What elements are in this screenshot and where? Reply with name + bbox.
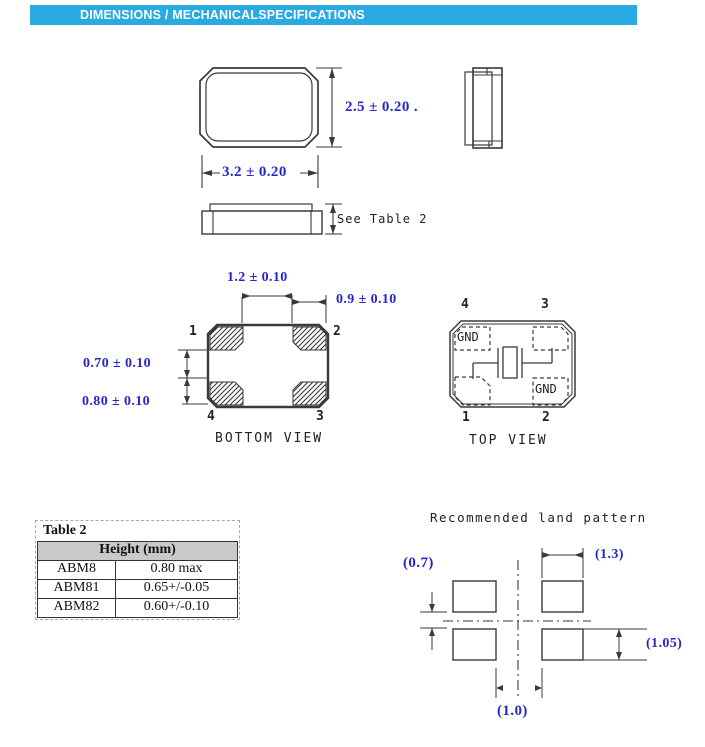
land-pad-h-dim: (1.05) (646, 636, 682, 652)
bottom-pad-height-dim: 0.80 ± 0.10 (82, 394, 150, 410)
table2-header-row: Height (mm) (38, 542, 238, 561)
land-pattern-title: Recommended land pattern (430, 510, 647, 525)
bottom-pad-width-dim: 0.9 ± 0.10 (336, 292, 397, 308)
table-row: ABM81 0.65+/-0.05 (38, 580, 238, 599)
land-pad-w-dim: (1.3) (595, 547, 624, 563)
model-cell: ABM81 (38, 580, 116, 599)
height-cell: 0.60+/-0.10 (116, 599, 238, 618)
height-cell: 0.65+/-0.05 (116, 580, 238, 599)
section-title: DIMENSIONS / MECHANICALSPECIFICATIONS (80, 8, 365, 22)
bottom-view-caption: BOTTOM VIEW (215, 431, 323, 446)
gnd-label-top-left: GND (457, 330, 479, 344)
bottom-pad-gap-v-dim: 0.70 ± 0.10 (83, 356, 151, 372)
model-cell: ABM82 (38, 599, 116, 618)
gnd-label-bottom-right: GND (535, 382, 557, 396)
height-cell: 0.80 max (116, 561, 238, 580)
top-pin-2-label: 2 (542, 410, 550, 425)
land-gap-v-dim: (0.7) (403, 555, 434, 572)
side-view-bottom-drawing (195, 198, 345, 240)
side-height-note: See Table 2 (337, 212, 427, 226)
datasheet-page: DIMENSIONS / MECHANICALSPECIFICATIONS 2.… (0, 0, 705, 747)
bottom-pin-1-label: 1 (189, 324, 197, 339)
front-height-dim: 2.5 ± 0.20 . (345, 99, 418, 116)
model-cell: ABM8 (38, 561, 116, 580)
table2: Height (mm) ABM8 0.80 max ABM81 0.65+/-0… (37, 541, 238, 618)
table2-header-cell: Height (mm) (38, 542, 238, 561)
bottom-pad-gap-h-dim: 1.2 ± 0.10 (227, 270, 288, 286)
table2-title: Table 2 (37, 522, 238, 541)
table-row: ABM82 0.60+/-0.10 (38, 599, 238, 618)
land-gap-h-dim: (1.0) (497, 703, 528, 720)
top-pin-3-label: 3 (541, 297, 549, 312)
table2-container: Table 2 Height (mm) ABM8 0.80 max ABM81 … (35, 520, 240, 620)
top-pin-4-label: 4 (461, 297, 469, 312)
front-width-dim: 3.2 ± 0.20 (222, 164, 287, 181)
side-view-right-drawing (460, 62, 510, 157)
bottom-pin-4-label: 4 (207, 409, 215, 424)
top-pin-1-label: 1 (462, 410, 470, 425)
table-row: ABM8 0.80 max (38, 561, 238, 580)
bottom-pin-3-label: 3 (316, 409, 324, 424)
bottom-pin-2-label: 2 (333, 324, 341, 339)
section-header-banner: DIMENSIONS / MECHANICALSPECIFICATIONS (30, 5, 637, 25)
top-view-caption: TOP VIEW (469, 433, 548, 448)
land-pattern-drawing (395, 540, 705, 705)
